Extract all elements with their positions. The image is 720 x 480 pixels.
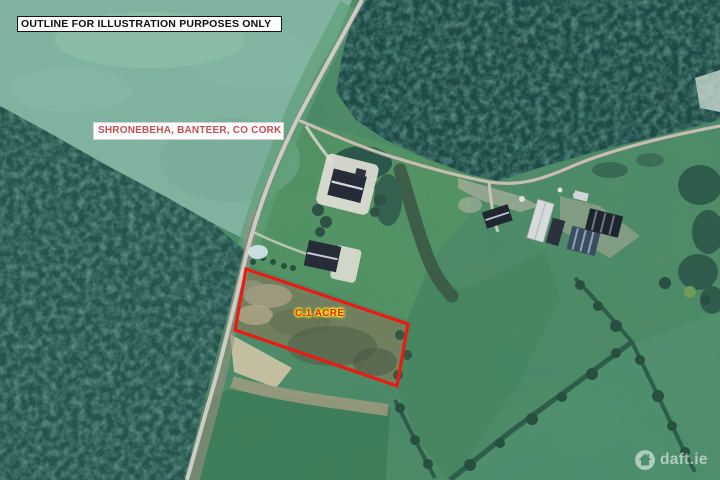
address-label: SHRONEBEHA, BANTEER, CO CORK [93,122,284,140]
site-map-image: OUTLINE FOR ILLUSTRATION PURPOSES ONLY S… [0,0,720,480]
plot-area-label: C.1 ACRE [295,308,345,319]
daft-house-icon [634,449,656,471]
photo-grain [0,0,720,480]
daft-watermark: daft.ie [634,449,708,471]
disclaimer-label: OUTLINE FOR ILLUSTRATION PURPOSES ONLY [17,16,282,32]
satellite-map [0,0,720,480]
watermark-brand-text: daft.ie [660,449,708,471]
